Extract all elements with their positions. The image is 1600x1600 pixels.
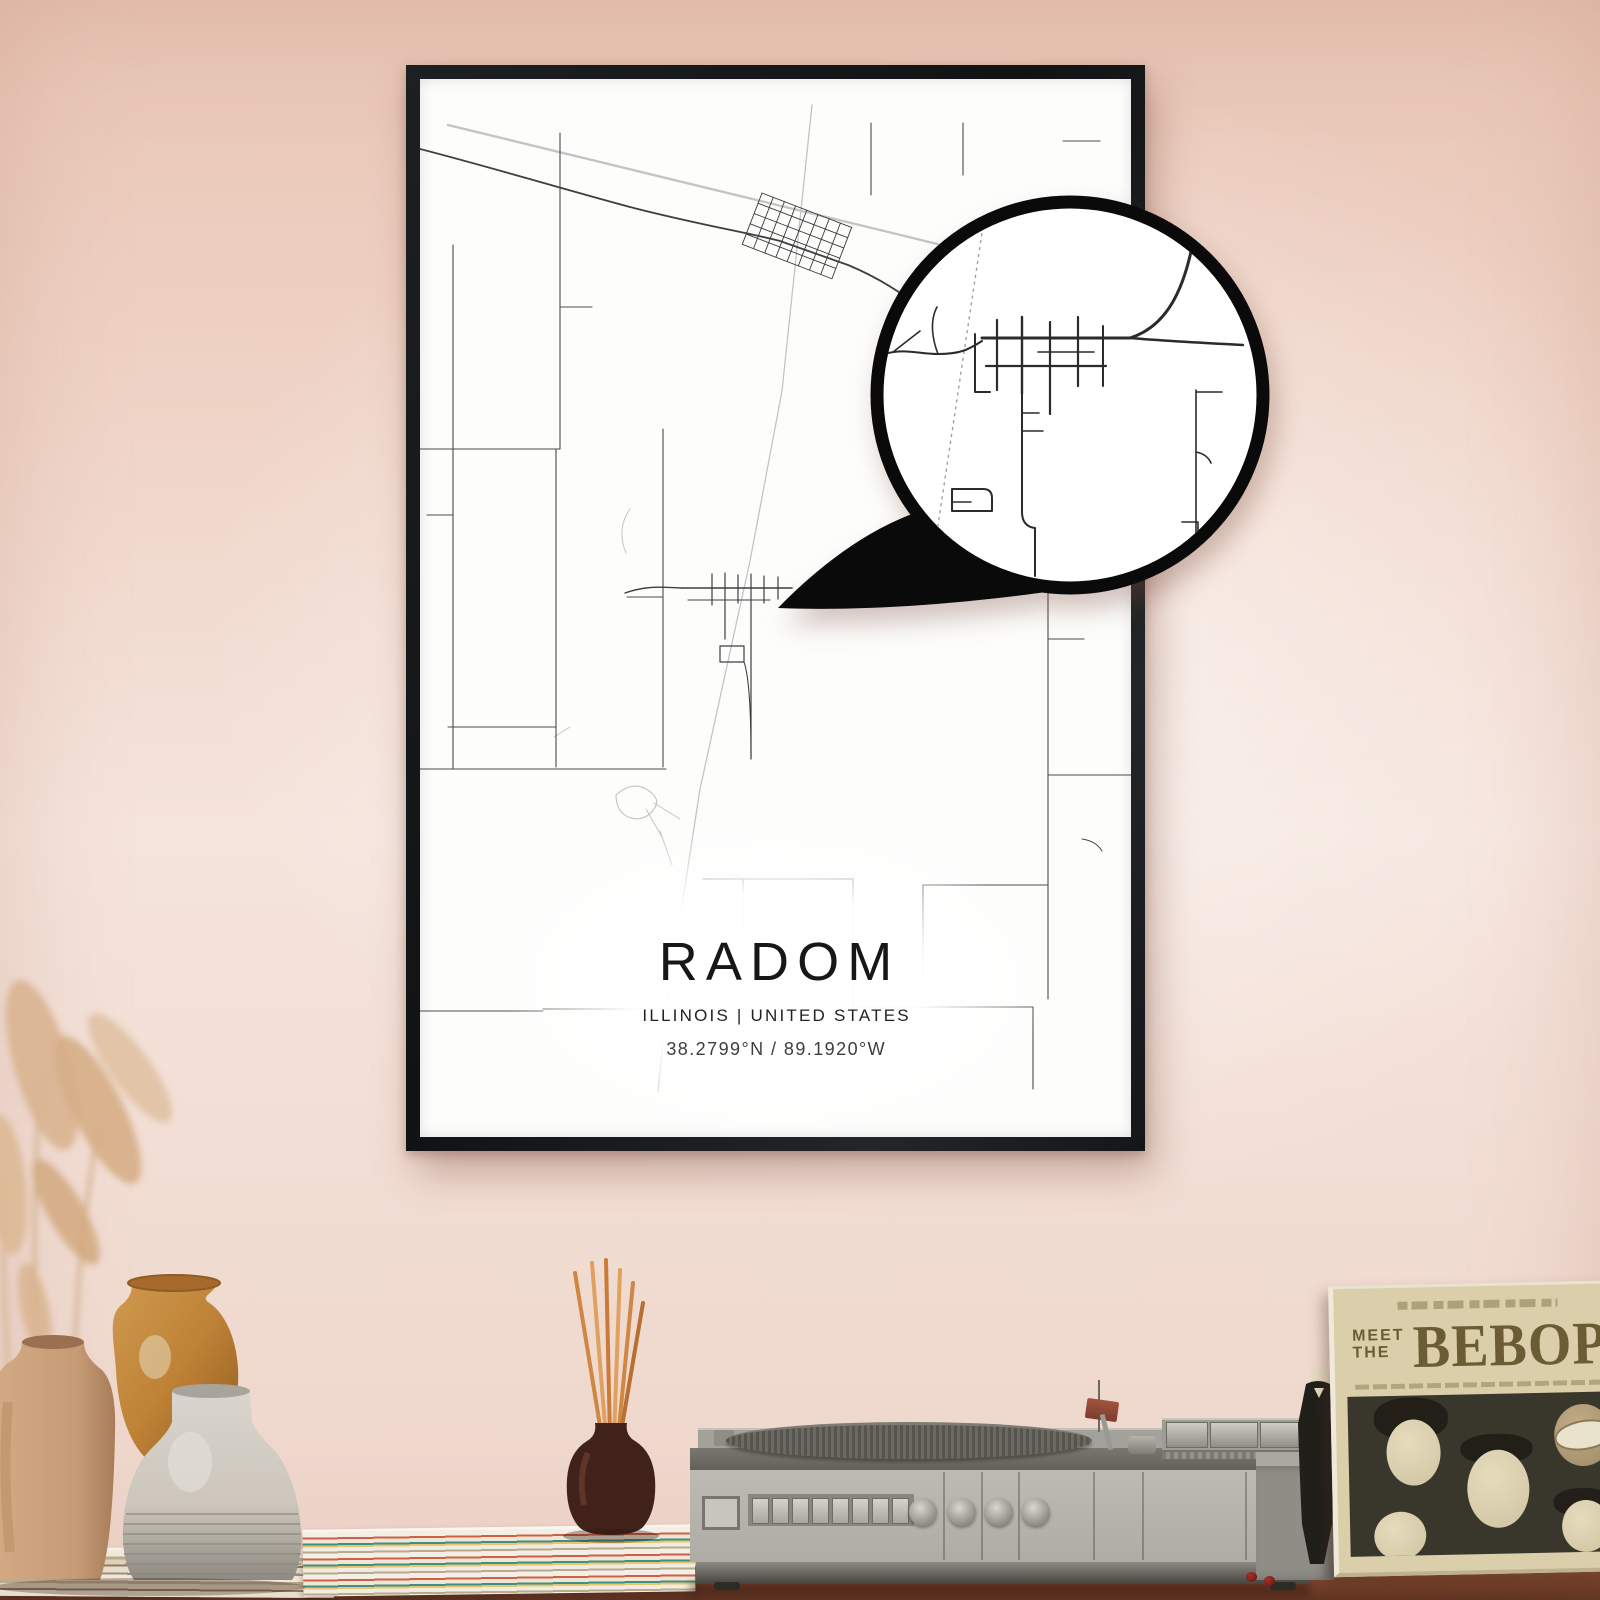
magnifier-ring [877,202,1263,588]
preset-button [752,1498,769,1524]
cassette-key [1166,1422,1208,1448]
preset-button [812,1498,829,1524]
album-artwork [1347,1391,1600,1557]
cassette-key [1210,1422,1258,1448]
album-title: MEET THE BEBOP [1352,1311,1600,1380]
album-word-the: THE [1352,1345,1405,1363]
panel-seam [1018,1472,1020,1560]
bass-knob [948,1498,976,1526]
panel-seam [1142,1472,1144,1560]
player-foot [714,1582,740,1590]
album-word-meet: MEET [1352,1328,1405,1346]
album-fine-print [1397,1299,1557,1310]
character-face [1467,1449,1531,1528]
panel-seam [943,1472,945,1560]
preset-button [892,1498,909,1524]
turntable-platter [726,1422,1092,1459]
preset-button-row [748,1494,914,1526]
panel-seam [1245,1472,1247,1560]
reed-diffuser [540,1248,690,1548]
panel-seam [981,1472,983,1560]
tan-vase [0,1335,115,1580]
album-title-large: BEBOP [1412,1309,1600,1382]
character-face [1562,1499,1600,1552]
preset-button [772,1498,789,1524]
album-cover: MEET THE BEBOP [1328,1280,1600,1577]
berry-decor [1264,1576,1275,1586]
cassette-deck [1162,1418,1304,1450]
record-player [690,1380,1315,1592]
tuning-knob [1022,1498,1050,1526]
room-scene: RADOM ILLINOIS | UNITED STATES 38.2799°N… [0,0,1600,1600]
vase-group [0,1262,320,1600]
character-face [1386,1419,1441,1486]
cue-knob [1128,1436,1156,1454]
power-button [702,1496,740,1530]
volume-knob [909,1498,937,1526]
preset-button [872,1498,889,1524]
album-subtitle-line [1355,1380,1600,1390]
panel-seam [1093,1472,1095,1560]
album-title-small: MEET THE [1352,1328,1405,1363]
player-plinth [696,1562,1309,1584]
character-face [1371,1508,1430,1557]
preset-button [852,1498,869,1524]
treble-knob [985,1498,1013,1526]
berry-decor [1246,1572,1257,1582]
preset-button [832,1498,849,1524]
preset-button [792,1498,809,1524]
